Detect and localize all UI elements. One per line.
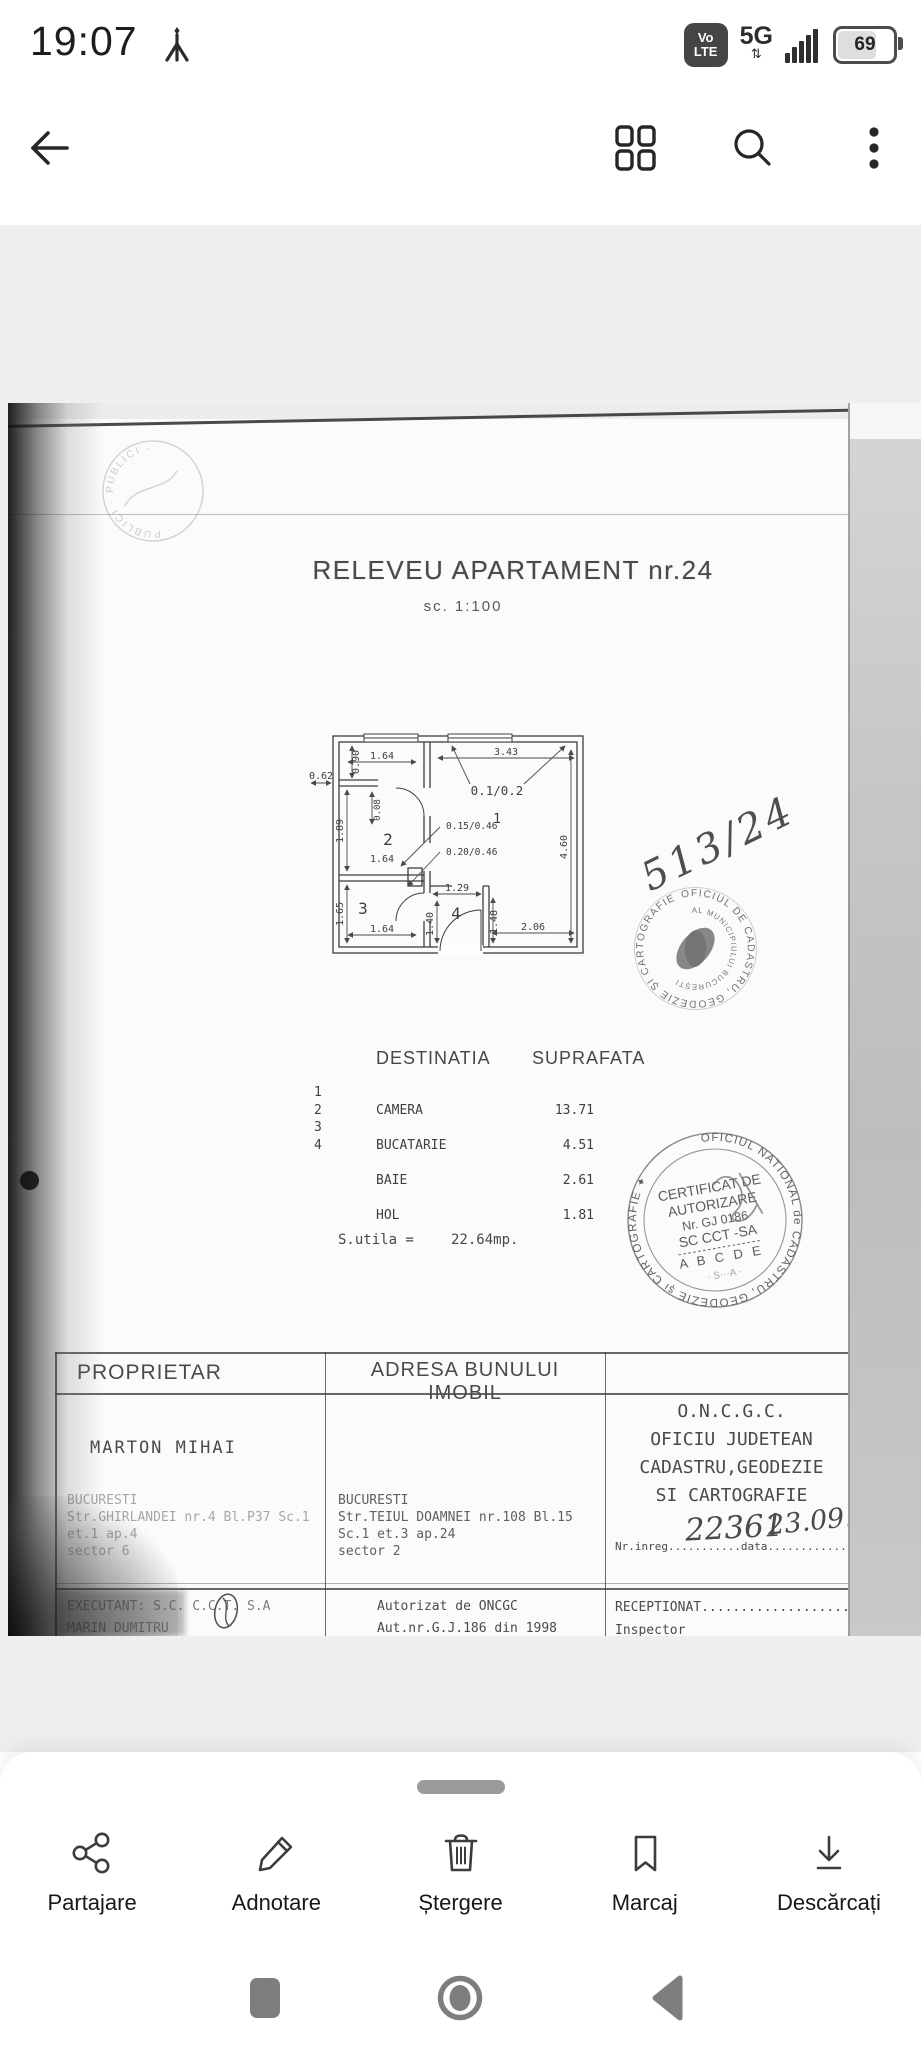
municipal-stamp-emblem: [662, 916, 730, 980]
reception-cell: RECEPTIONAT..................... Inspect…: [615, 1596, 865, 1636]
area-name-3: HOL: [376, 1207, 446, 1225]
document-scale-note: sc. 1:100: [398, 598, 528, 615]
scanned-document-photo[interactable]: · PUBLICI · PUBLICI · RELEVEU APARTAMENT…: [8, 403, 921, 1636]
recents-icon: [248, 1976, 282, 2020]
area-name-1: BUCATARIE: [376, 1137, 446, 1155]
total-area-label: S.utila =: [338, 1232, 414, 1248]
bottom-left-shadow: [8, 1496, 178, 1636]
bookmark-icon: [622, 1830, 668, 1876]
download-label: Descărcați: [777, 1890, 881, 1916]
clock: 19:07: [30, 18, 138, 65]
svg-text:1.64: 1.64: [370, 751, 394, 762]
volte-bottom: LTE: [694, 45, 718, 59]
volte-top: Vo: [698, 31, 714, 45]
area-value-2: 2.61: [490, 1172, 594, 1190]
property-address-line-1: Str.TEIUL DOAMNEI nr.108 Bl.15: [338, 1509, 573, 1526]
auth-line-1: Autorizat de ONCGC: [377, 1596, 557, 1618]
office-line-1: OFICIU JUDETEAN: [608, 1426, 855, 1454]
svg-text:4.60: 4.60: [559, 835, 570, 859]
svg-text:1: 1: [493, 812, 501, 827]
svg-text:0.62: 0.62: [309, 771, 333, 782]
property-address-line-3: sector 2: [338, 1543, 573, 1560]
action-bottom-sheet: Partajare Adnotare: [0, 1752, 921, 2048]
action-bar: Partajare Adnotare: [0, 1830, 921, 1916]
faint-stamp-text: · PUBLICI · PUBLICI ·: [89, 440, 190, 555]
back-button[interactable]: [20, 120, 76, 176]
svg-text:0.15/0.46: 0.15/0.46: [446, 821, 498, 832]
download-icon: [806, 1830, 852, 1876]
gallery-grid-button[interactable]: [608, 120, 664, 176]
annotate-button[interactable]: Adnotare: [184, 1830, 368, 1916]
svg-text:0.20/0.46: 0.20/0.46: [446, 847, 498, 858]
property-address-line-0: BUCURESTI: [338, 1492, 573, 1509]
svg-text:1.48: 1.48: [489, 910, 500, 934]
areas-col-destination: DESTINATIA: [376, 1048, 491, 1069]
circled-signature: [211, 1590, 241, 1632]
back-nav-button[interactable]: [640, 1970, 696, 2026]
document-title: RELEVEU APARTAMENT nr.24: [298, 555, 728, 586]
network-type: 5G ⇅: [740, 26, 773, 64]
delete-button[interactable]: Ștergere: [368, 1830, 552, 1916]
share-icon: [69, 1830, 115, 1876]
search-icon: [728, 124, 776, 172]
recents-button[interactable]: [237, 1970, 293, 2026]
network-label: 5G: [740, 26, 773, 46]
home-icon: [435, 1973, 485, 2023]
certificate-stamp-center-text: CERTIFICAT DE AUTORIZARE Nr. GJ 0186 SC …: [657, 1171, 777, 1290]
property-address-line-2: Sc.1 et.3 ap.24: [338, 1526, 573, 1543]
authorization-cell: Autorizat de ONCGC Aut.nr.G.J.186 din 19…: [377, 1596, 557, 1636]
svg-text:0.08: 0.08: [373, 799, 383, 821]
annotate-label: Adnotare: [232, 1890, 321, 1916]
share-button[interactable]: Partajare: [0, 1830, 184, 1916]
right-edge-strip: [848, 403, 921, 1636]
header-adresa: ADRESA BUNULUI IMOBIL: [333, 1359, 597, 1405]
owner-name: MARTON MIHAI: [90, 1438, 237, 1458]
svg-text:0.90: 0.90: [351, 750, 362, 774]
area-value-1: 4.51: [490, 1137, 594, 1155]
svg-text:1.64: 1.64: [370, 854, 394, 865]
bookmark-label: Marcaj: [612, 1890, 678, 1916]
svg-text:2: 2: [383, 830, 393, 849]
android-navbar: [0, 1962, 921, 2032]
share-label: Partajare: [47, 1890, 136, 1916]
trash-icon: [438, 1830, 484, 1876]
svg-text:1.89: 1.89: [335, 819, 346, 843]
areas-room-names: CAMERA BUCATARIE BAIE HOL: [376, 1084, 446, 1242]
status-bar: 19:07 Vo LTE 5G ⇅: [0, 0, 921, 90]
image-viewer: · PUBLICI · PUBLICI · RELEVEU APARTAMENT…: [0, 225, 921, 1752]
battery-percent: 69: [836, 29, 894, 61]
right-top-notch: [850, 403, 921, 439]
areas-col-area: SUPRAFATA: [532, 1048, 645, 1069]
area-value-0: 13.71: [490, 1102, 594, 1120]
svg-text:1.64: 1.64: [370, 924, 394, 935]
left-edge-shadow: [8, 403, 104, 1636]
cell-tower-icon: [160, 26, 194, 66]
svg-text:2.06: 2.06: [521, 922, 545, 933]
area-name-0: CAMERA: [376, 1102, 446, 1120]
areas-values: 13.71 4.51 2.61 1.81: [490, 1084, 594, 1242]
bookmark-button[interactable]: Marcaj: [553, 1830, 737, 1916]
auth-line-2: Aut.nr.G.J.186 din 1998: [377, 1618, 557, 1636]
reception-line-2: Inspector: [615, 1619, 865, 1636]
signal-bars-icon: [785, 25, 821, 65]
delete-label: Ștergere: [418, 1890, 502, 1916]
plan-dimension-labels: 1.64 0.90 0.62 3.43 0.1/0.2 1.89 0.08 0.…: [309, 747, 570, 936]
three-dots-icon: [867, 124, 881, 172]
volte-badge: Vo LTE: [684, 23, 728, 67]
area-value-3: 1.81: [490, 1207, 594, 1225]
battery-nub: [898, 37, 903, 50]
home-button[interactable]: [432, 1970, 488, 2026]
gallery-toolbar: [0, 90, 921, 225]
municipal-stamp: OFICIUL DE CADASTRU, GEODEZIE ȘI CARTOGR…: [601, 854, 791, 1044]
download-button[interactable]: Descărcați: [737, 1830, 921, 1916]
area-name-2: BAIE: [376, 1172, 446, 1190]
office-line-0: O.N.C.G.C.: [608, 1398, 855, 1426]
back-triangle-icon: [650, 1974, 686, 2022]
certificate-stamp: OFICIUL NATIONAL de CADASTRU, GEODEZIE ș…: [605, 1110, 825, 1330]
overflow-menu-button[interactable]: [846, 120, 902, 176]
phone-screen: 19:07 Vo LTE 5G ⇅: [0, 0, 921, 2048]
battery-icon: 69: [833, 26, 897, 64]
property-address: BUCURESTI Str.TEIUL DOAMNEI nr.108 Bl.15…: [338, 1492, 573, 1560]
areas-row-numbers: 1 2 3 4: [314, 1084, 322, 1154]
reception-line-1: RECEPTIONAT.....................: [615, 1596, 865, 1619]
svg-text:· S···A ·: · S···A ·: [706, 1266, 742, 1283]
drag-handle[interactable]: [417, 1780, 505, 1794]
svg-text:1.29: 1.29: [445, 883, 469, 894]
svg-text:1.40: 1.40: [425, 912, 436, 936]
search-button[interactable]: [724, 120, 780, 176]
svg-text:· PUBLICI · PUBLICI ·: · PUBLICI · PUBLICI ·: [89, 440, 190, 555]
office-line-2: CADASTRU,GEODEZIE: [608, 1454, 855, 1482]
back-arrow-icon: [24, 124, 72, 172]
grid-icon: [613, 123, 659, 173]
plan-dimension-lines: [311, 746, 574, 943]
total-area-value: 22.64mp.: [451, 1232, 518, 1248]
svg-text:3.43: 3.43: [494, 747, 518, 758]
pencil-icon: [253, 1830, 299, 1876]
svg-text:3: 3: [358, 899, 368, 918]
svg-text:1.65: 1.65: [335, 902, 346, 926]
svg-text:0.1/0.2: 0.1/0.2: [471, 783, 524, 798]
office-block: O.N.C.G.C. OFICIU JUDETEAN CADASTRU,GEOD…: [608, 1398, 855, 1510]
svg-text:4: 4: [451, 904, 461, 923]
floor-plan-drawing: 1.64 0.90 0.62 3.43 0.1/0.2 1.89 0.08 0.…: [300, 728, 590, 963]
network-arrows-icon: ⇅: [751, 44, 762, 64]
